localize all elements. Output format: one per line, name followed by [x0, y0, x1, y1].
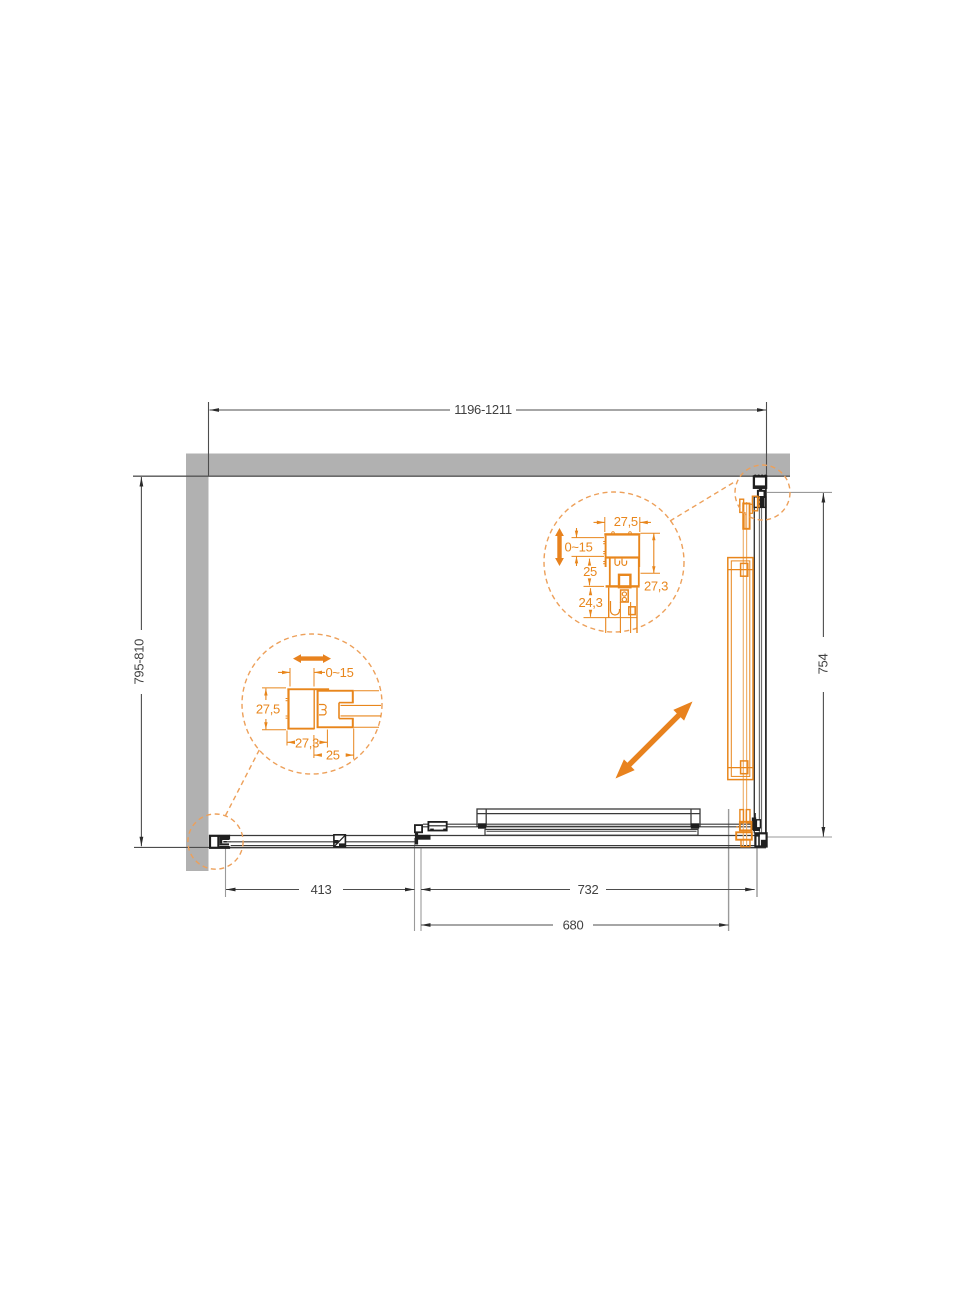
svg-text:1196-1211: 1196-1211: [454, 402, 512, 417]
svg-text:680: 680: [563, 918, 584, 933]
svg-text:795-810: 795-810: [131, 639, 146, 685]
svg-text:25: 25: [583, 564, 597, 579]
svg-text:27,3: 27,3: [295, 736, 319, 751]
svg-text:732: 732: [578, 882, 599, 897]
svg-text:27,3: 27,3: [644, 579, 668, 594]
svg-text:754: 754: [815, 654, 830, 675]
svg-text:0~15: 0~15: [564, 540, 592, 555]
svg-text:0~15: 0~15: [325, 665, 353, 680]
svg-text:24,3: 24,3: [578, 595, 602, 610]
svg-text:27,5: 27,5: [256, 702, 280, 717]
svg-text:25: 25: [326, 748, 340, 763]
svg-text:413: 413: [311, 882, 332, 897]
svg-text:27,5: 27,5: [614, 514, 638, 529]
